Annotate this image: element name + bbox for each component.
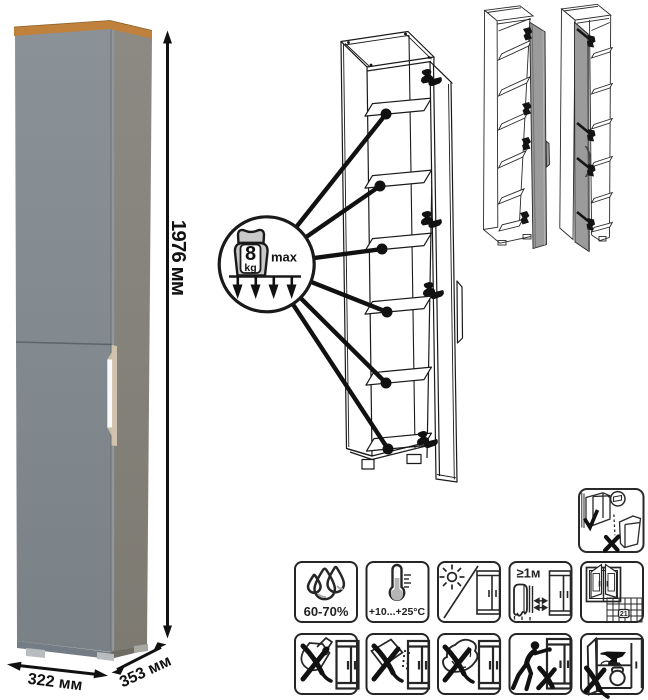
- svg-text:60-70%: 60-70%: [304, 604, 349, 619]
- svg-text:322 мм: 322 мм: [27, 671, 83, 695]
- svg-text:≥1м: ≥1м: [517, 566, 541, 581]
- svg-text:max: max: [271, 250, 298, 265]
- svg-text:21: 21: [620, 611, 628, 618]
- svg-text:+10...+25°C: +10...+25°C: [369, 606, 426, 618]
- svg-text:kg: kg: [244, 262, 256, 274]
- svg-text:353 мм: 353 мм: [117, 653, 174, 692]
- svg-text:1976 мм: 1976 мм: [167, 220, 190, 295]
